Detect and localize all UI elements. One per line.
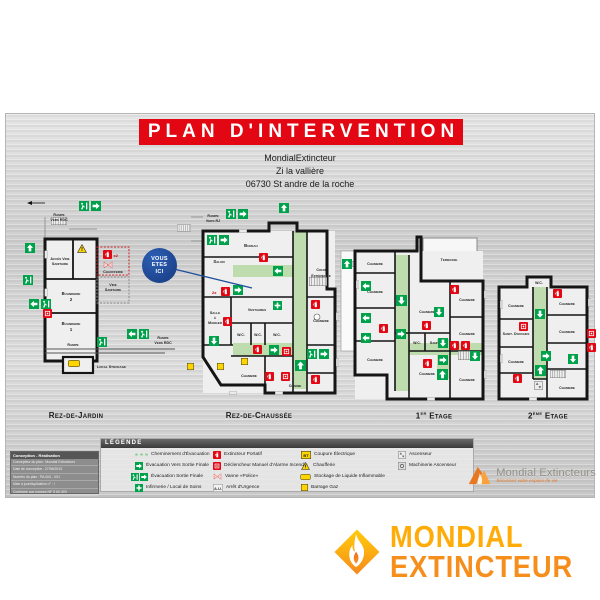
exit-sign-icon [226, 209, 236, 219]
window-icon [427, 398, 435, 401]
evacuation-path-icon [135, 452, 148, 457]
green-arrow-icon [319, 349, 329, 359]
floorplan-2eme-etage: W.C. Chambre Chambre Sanit. Douches Cham… [489, 267, 597, 409]
room-label: Chambre [459, 332, 475, 336]
emergency-stop-icon: A.U. [213, 484, 223, 492]
marker-line: ICI [156, 269, 164, 276]
window-icon [239, 230, 247, 233]
floorplan-1er-etage: Chambre Terrasse Chambre Chambre Chambre… [337, 223, 493, 423]
window-icon [45, 251, 48, 259]
window-icon [275, 392, 283, 395]
room-label: W.C. [413, 341, 421, 345]
room-label: Sanitaire [52, 262, 68, 266]
green-arrow-icon [434, 307, 444, 317]
walls [499, 277, 591, 400]
green-arrow-icon [438, 338, 448, 348]
extinguisher-icon [422, 321, 431, 330]
elevator-icon [534, 381, 542, 389]
footer-brand-line2: EXTINCTEUR [390, 552, 573, 582]
room-label: Chambre [459, 298, 475, 302]
legend-item: Infirmerie / Local de Soins [135, 483, 201, 492]
extinguisher-count: x2 [114, 253, 119, 258]
flame-mountain-icon [466, 460, 493, 490]
address-name: MondialExtincteur [6, 152, 594, 165]
legend-item: Stockage de Liquide Inflammable [300, 472, 385, 481]
room-label: Sanitaire [105, 288, 121, 292]
first-aid-icon [135, 484, 143, 492]
room-label: W.C. [254, 333, 262, 337]
caption-rez-de-jardin: Rez-de-Jardin [31, 411, 121, 420]
fire-alarm-icon [282, 347, 291, 356]
legend-item: Évacuation Vers Sortie Finale [135, 461, 209, 470]
elevator-icon [398, 451, 406, 459]
gas-shutoff-icon [217, 363, 223, 369]
extinguisher-icon [587, 343, 596, 352]
final-exit-icon [131, 473, 148, 481]
exit-sign-icon [23, 275, 33, 285]
north-arrow-icon [27, 201, 32, 205]
window-icon [500, 355, 503, 363]
green-arrow-icon [535, 365, 546, 376]
green-arrow-icon [361, 313, 371, 323]
window-icon [484, 371, 487, 379]
caption-1er-etage: 1er Etage [389, 411, 479, 421]
room-label: Chambre [367, 358, 383, 362]
legend: LÉGENDE Cheminement d'Évacuation Évacuat… [100, 438, 474, 492]
room-label: Chambre [508, 304, 524, 308]
extinguisher-icon [103, 250, 112, 259]
flammable-storage-icon [68, 360, 79, 366]
green-arrow-icon [470, 351, 480, 361]
svg-text:A.U.: A.U. [214, 485, 222, 490]
extinguisher-icon [253, 345, 262, 354]
legend-item: Extincteur Portatif [213, 450, 262, 459]
cartouche-line: Numéro du plan : PA-004 - V01 [11, 474, 98, 481]
fire-alarm-icon [519, 322, 528, 331]
legend-item: Ascenseur [398, 450, 432, 459]
green-arrow-icon [361, 333, 371, 343]
room-label: Buanderie [62, 321, 81, 326]
exit-sign-icon [207, 235, 217, 245]
window-icon [588, 299, 591, 307]
room-label: Chambre [559, 386, 575, 390]
title-banner: PLAN D'INTERVENTION [139, 119, 463, 145]
cartouche-line: Concepteur du plan : Mondial Extincteurs [11, 459, 98, 466]
caption-rez-de-chaussee: Rez-de-Chaussée [214, 411, 304, 420]
footer-brand-line1: MONDIAL [390, 522, 573, 552]
cartouche-header: Conception - Réalisation [11, 452, 98, 459]
extinguisher-icon [513, 374, 522, 383]
cartouche-line: Conforme aux normes NF S 60-303 [11, 489, 98, 496]
exit-sign-icon [139, 329, 149, 339]
stairs-icon [550, 370, 566, 378]
design-cartouche: Conception - Réalisation Concepteur du p… [10, 451, 99, 494]
flame-diamond-icon [330, 504, 384, 600]
flammable-storage-icon [300, 474, 311, 480]
legend-item: Évacuation Sortie Finale [131, 472, 203, 481]
gas-shutoff-icon [187, 363, 193, 369]
extinguisher-icon [213, 451, 221, 459]
room-label: Cour [316, 268, 326, 272]
floorplan-rez-de-chaussee: Rampe Vers RJ Bureau Salon Cour Extérieu… [169, 197, 339, 409]
room-label: Rampe [67, 343, 78, 347]
green-arrow-icon [437, 369, 448, 380]
green-arrow-icon [135, 462, 143, 470]
page-title: PLAN D'INTERVENTION [143, 121, 459, 143]
legend-item: A.U. Arrêt d'Urgence [213, 483, 259, 492]
extinguisher-icon [553, 289, 562, 298]
extinguisher-icon [450, 341, 459, 350]
green-arrow-icon [219, 235, 229, 245]
room-label: Terrasse [441, 258, 458, 262]
green-arrow-icon [541, 351, 551, 361]
green-arrow-icon [273, 266, 283, 276]
extinguisher-icon [423, 359, 432, 368]
green-arrow-icon [342, 259, 352, 269]
green-arrow-icon [29, 299, 39, 309]
cartouche-line: Date de conception : 27/06/2013 [11, 466, 98, 473]
extinguisher-icon [311, 375, 320, 384]
page: { "panel": { "title": "PLAN D'INTERVENTI… [0, 0, 600, 600]
room-label: Chambre [241, 374, 257, 378]
cartouche-line: Mise à jour/duplication n° : / [11, 481, 98, 488]
exit-sign-icon [307, 349, 317, 359]
window-icon [500, 301, 503, 309]
site-address: MondialExtincteur Zi la vallière 06730 S… [6, 152, 594, 191]
room-label: W.C. [535, 281, 543, 285]
room-label: Manger [208, 321, 223, 325]
exit-sign-icon [79, 201, 89, 211]
room-label: Chambre [367, 262, 383, 266]
green-arrow-icon [361, 281, 371, 291]
police-valve-icon [104, 262, 112, 268]
fire-alarm-icon [43, 309, 52, 318]
room-label: Accès Vide [50, 256, 69, 261]
room-label: Chambre [419, 310, 435, 314]
walls [27, 201, 175, 373]
intervention-panel: PLAN D'INTERVENTION MondialExtincteur Zi… [5, 113, 595, 498]
green-arrow-icon [127, 329, 137, 339]
green-arrow-icon [396, 329, 406, 339]
legend-item: Vanne «Police» [213, 472, 258, 481]
green-arrow-icon [269, 345, 279, 355]
room-label: Chaufferie [103, 270, 123, 274]
window-icon [45, 289, 48, 297]
legend-header: LÉGENDE [101, 439, 473, 448]
you-are-here-pointer [171, 264, 256, 292]
legend-item: Chaufferie [301, 461, 335, 470]
caption-2eme-etage: 2ème Etage [503, 411, 593, 421]
room-label: Chambre [508, 360, 524, 364]
extinguisher-icon [311, 300, 320, 309]
room-label: Sanit. Douches [503, 332, 530, 336]
stairs-icon [309, 277, 326, 286]
fire-alarm-icon [587, 329, 596, 338]
room-label: Rampe [53, 213, 64, 217]
first-aid-icon [273, 301, 282, 310]
room-label: Chambre [419, 372, 435, 376]
exit-sign-icon [97, 337, 107, 347]
green-arrow-icon [209, 336, 219, 346]
room-label: Bureau [244, 243, 258, 248]
room-label: Chambre [559, 330, 575, 334]
room-label: W.C. [237, 333, 245, 337]
window-icon [356, 281, 359, 289]
address-city: 06730 St andre de la roche [6, 178, 594, 191]
legend-item: Barrage Gaz [301, 483, 338, 492]
legend-item: BT Coupure Électrique [301, 450, 355, 459]
green-arrow-icon [238, 209, 248, 219]
green-arrow-icon [568, 354, 578, 364]
room-label: Salle [210, 311, 220, 315]
brand-logo-panel: Mondial Extincteurs Sécurisez votre espa… [466, 452, 596, 498]
boiler-warning-icon [301, 462, 310, 470]
room-label: Vers RDC [50, 218, 68, 222]
green-arrow-icon [438, 355, 448, 365]
you-are-here-marker: VOUS ETES ICI [142, 248, 177, 283]
stairs-icon [177, 225, 191, 232]
extinguisher-icon [450, 285, 459, 294]
window-icon [529, 398, 537, 401]
fixture-icon [314, 314, 320, 320]
fire-alarm-icon [213, 462, 221, 470]
power-cut-icon [241, 358, 247, 364]
room-label: Chambre [459, 378, 475, 382]
room-label: Buanderie [62, 291, 81, 296]
room-label: Rampe [207, 214, 218, 218]
extinguisher-icon [223, 317, 232, 326]
green-arrow-icon [396, 295, 407, 306]
elevator-machinery-icon [398, 462, 406, 470]
window-icon [229, 392, 237, 395]
extinguisher-icon [259, 253, 268, 262]
room-label: Vide [109, 283, 116, 287]
green-arrow-icon [279, 203, 289, 213]
room-label: Cuisine [289, 384, 302, 388]
room-label: Chambre [559, 302, 575, 306]
room-label: Vestiaires [248, 308, 266, 312]
extinguisher-icon [379, 324, 388, 333]
svg-text:BT: BT [303, 452, 309, 457]
footer-brand: MONDIAL EXTINCTEUR [330, 504, 598, 600]
floorplan-rez-de-jardin: Rampe Vers RDC x2 Accès Vide Sanitaire C… [15, 193, 183, 408]
gas-shutoff-icon [301, 484, 308, 491]
room-label: Rampe [157, 336, 168, 340]
power-cut-icon: BT [301, 451, 311, 459]
legend-item: Machinerie Ascenseur [398, 461, 456, 470]
green-arrow-icon [91, 201, 101, 211]
room-label: Local Stockage [97, 365, 126, 369]
extinguisher-icon [461, 341, 470, 350]
green-arrow-icon [25, 243, 35, 253]
exit-sign-icon [41, 299, 51, 309]
window-icon [484, 291, 487, 299]
green-arrow-icon [295, 360, 306, 371]
room-label: W.C. [273, 333, 281, 337]
police-valve-icon [213, 473, 222, 480]
fire-alarm-icon [281, 372, 290, 381]
green-arrow-icon [535, 309, 545, 319]
room-label: Vers RJ [206, 219, 220, 223]
extinguisher-icon [265, 372, 274, 381]
address-street: Zi la vallière [6, 165, 594, 178]
legend-item: Déclencheur Manuel d'Alarme Incendie [213, 461, 308, 470]
legend-item: Cheminement d'Évacuation [135, 450, 210, 459]
room-label: Extérieure [311, 273, 331, 278]
